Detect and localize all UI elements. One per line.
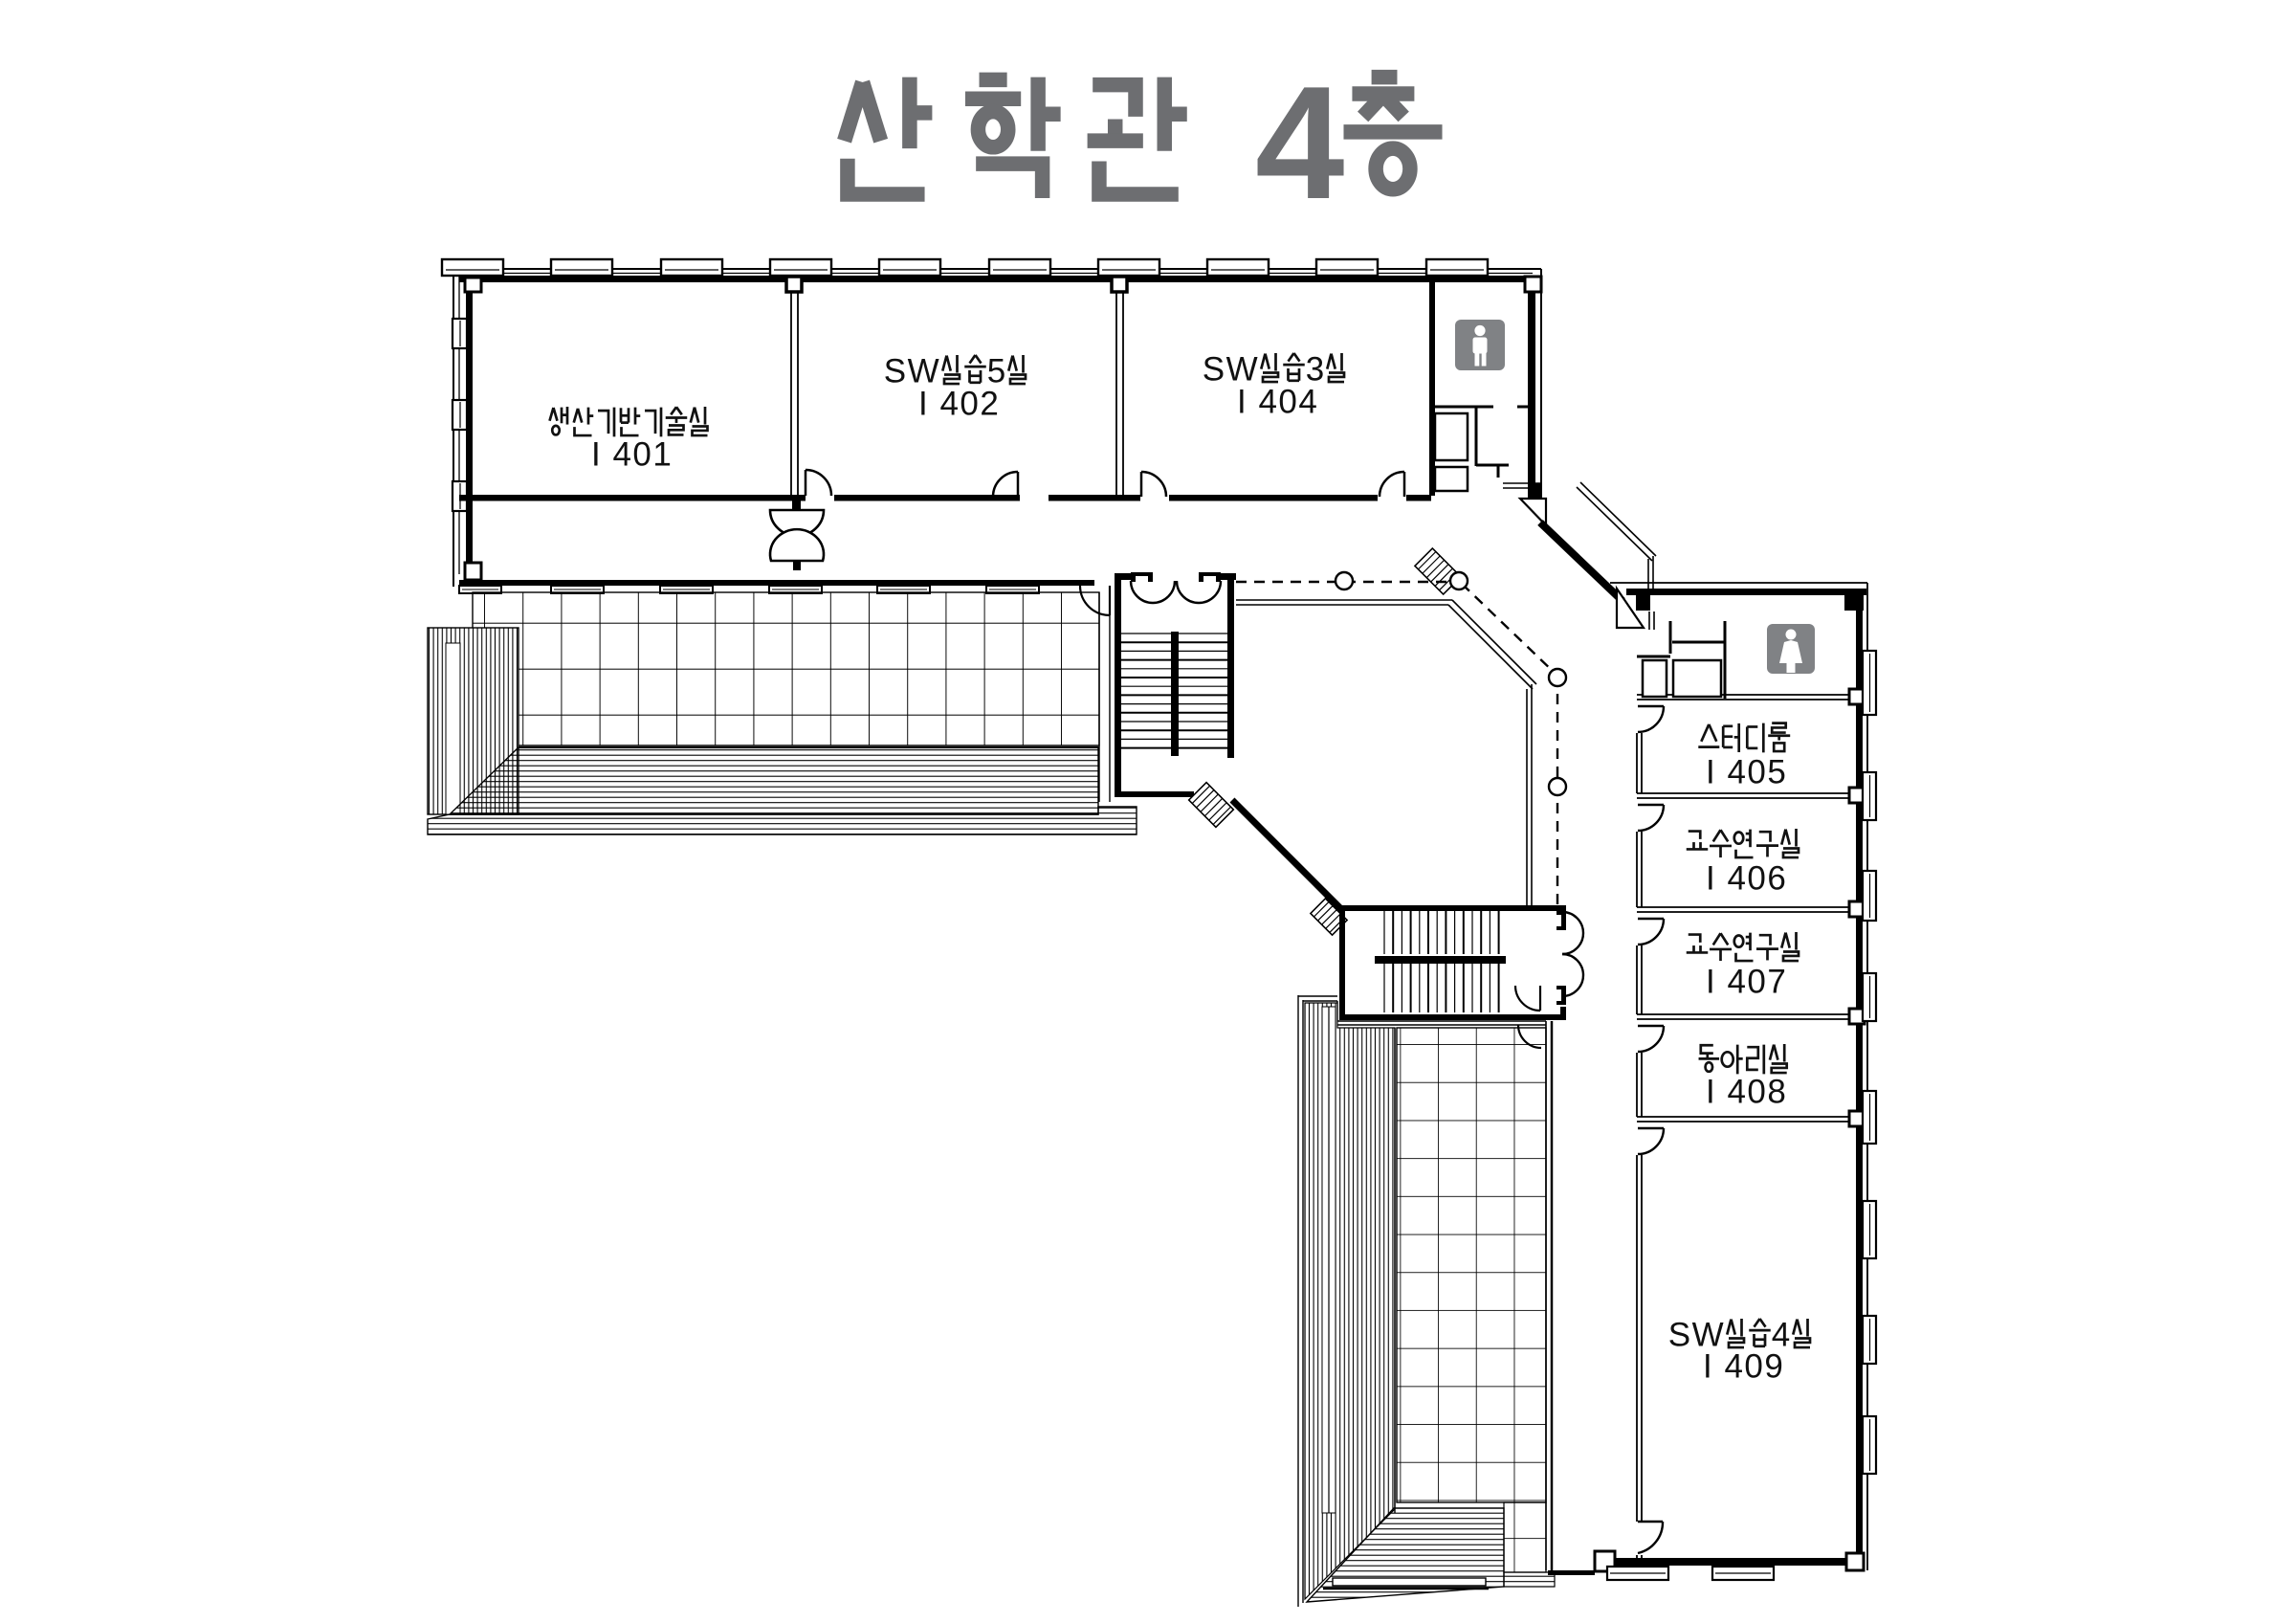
svg-text:I 409: I 409 [1703,1348,1784,1386]
svg-text:I 406: I 406 [1706,860,1787,898]
svg-text:I 407: I 407 [1706,964,1787,1001]
svg-text:I 405: I 405 [1706,754,1787,791]
svg-text:I 401: I 401 [591,436,673,474]
svg-text:I 402: I 402 [918,386,1000,423]
svg-text:I 408: I 408 [1706,1074,1787,1111]
svg-text:4: 4 [1255,53,1344,233]
svg-text:I 404: I 404 [1237,384,1318,421]
